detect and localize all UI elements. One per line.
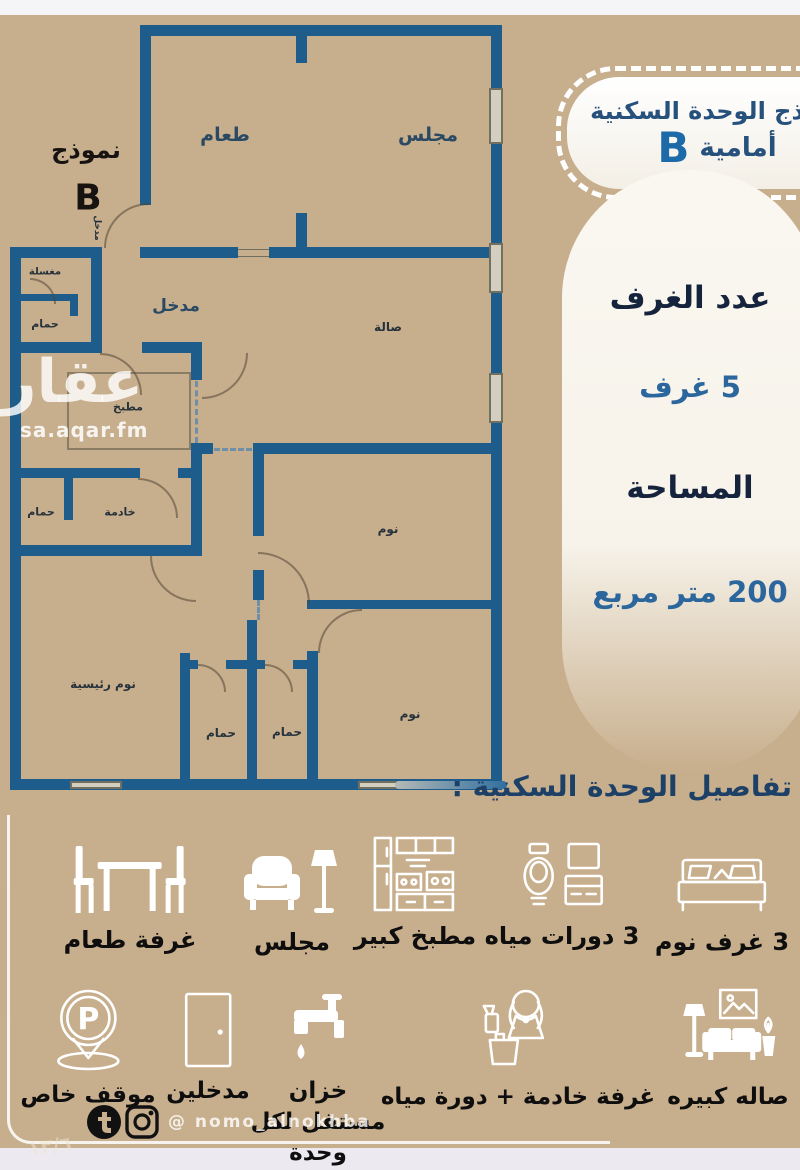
kitchen-icon [373, 832, 457, 912]
door-arc [30, 278, 56, 304]
wall-segment [191, 454, 202, 556]
water-tank-icon [286, 994, 350, 1066]
wall-segment [70, 294, 78, 316]
area-label: المساحة [626, 470, 753, 506]
wall-segment [180, 653, 190, 779]
wall-segment [247, 620, 257, 779]
room-label-maid: خادمة [104, 506, 135, 519]
wall-segment [91, 247, 102, 353]
wall-segment [140, 247, 238, 258]
tumblr-icon[interactable] [86, 1104, 122, 1140]
open-passage [195, 381, 198, 443]
feature-label: مجلس [254, 928, 330, 956]
info-panel: عدد الغرف 5 غرف المساحة 200 متر مربع [562, 170, 800, 772]
feature-bathrooms: 3 دورات مياه [485, 832, 640, 950]
aqar-logo: عقار [2, 352, 143, 412]
room-label-bath-a: حمام [206, 726, 236, 740]
room-label-master: نوم رئيسية [70, 677, 136, 691]
feature-label: غرفة طعام [64, 926, 197, 954]
wall-segment [178, 468, 191, 478]
room-label-maid-bath: حمام [27, 506, 55, 519]
badge-subtitle-text: أمامية [699, 133, 776, 163]
open-passage [214, 448, 252, 451]
toilet-icon [519, 832, 605, 912]
window [489, 243, 503, 293]
bed-icon [674, 838, 770, 918]
wall-segment [10, 545, 202, 556]
room-label-bath-top: حمام [31, 318, 59, 331]
wall-segment [307, 651, 318, 779]
wall-segment [10, 468, 140, 478]
rooms-count-label: عدد الغرف [610, 280, 771, 316]
living-room-icon [678, 988, 778, 1074]
wall-segment [269, 247, 491, 258]
room-label-hall: صالة [374, 320, 402, 334]
room-label-dining: طعام [200, 124, 250, 146]
svg-text:P: P [77, 1002, 99, 1037]
window [489, 88, 503, 144]
feature-dining-room: غرفة طعام [64, 836, 197, 954]
social-handle[interactable]: @ nomo_alnokhba [168, 1112, 371, 1132]
corner-model-title: نموذج [51, 136, 121, 164]
area-value: 200 متر مربع [592, 575, 787, 609]
door-arc [104, 203, 149, 248]
badge-subtitle: أمامية B [657, 127, 776, 169]
wall-segment [293, 660, 307, 669]
door-arc [202, 353, 248, 399]
room-label-bath-b: حمام [272, 725, 302, 739]
maid-icon [478, 986, 558, 1074]
badge-title: نموذج الوحدة السكنية [590, 97, 800, 125]
wall-segment [140, 25, 502, 36]
door-arc [138, 478, 178, 518]
wall-segment [257, 660, 265, 669]
wall-segment [190, 660, 198, 669]
room-label-entrance: مدخل [152, 296, 200, 316]
room-label-bedroom-mid: نوم [378, 522, 399, 536]
wall-segment [296, 25, 307, 63]
wall-segment [140, 25, 151, 205]
top-strip [0, 0, 800, 15]
wall-segment [10, 253, 21, 790]
corner-model-letter: B [74, 178, 101, 219]
feature-label: مدخلين [166, 1078, 250, 1104]
feature-maid-room: غرفة خادمة + دورة مياه [381, 986, 655, 1110]
feature-parking: P موقف خاص [20, 988, 155, 1108]
feature-entrances: مدخلين [166, 992, 250, 1104]
door-arc [265, 664, 293, 692]
room-label-entrance-door: مدخل [92, 215, 102, 240]
feature-label: صاله كبيره [667, 1084, 789, 1110]
room-label-bedroom-bottom: نوم [400, 707, 421, 721]
feature-label: 3 دورات مياه [485, 922, 640, 950]
feature-water-tank: خزان مستقل لكل وحدة [243, 994, 393, 1169]
feature-label: 3 غرف نوم [655, 928, 789, 956]
wall-segment [191, 443, 213, 454]
door-arc [318, 609, 362, 653]
door-arc [150, 556, 196, 602]
room-label-laundry: مغسلة [29, 267, 61, 278]
badge-letter: B [657, 127, 689, 169]
feature-label: مطبخ كبير [354, 922, 476, 950]
instagram-icon[interactable] [124, 1104, 160, 1140]
window [489, 373, 503, 423]
wall-segment [253, 454, 264, 536]
rooms-count-value: 5 غرف [639, 370, 741, 404]
details-heading: تفاصيل الوحدة السكنية : [452, 770, 792, 803]
wall-segment [253, 443, 491, 454]
doorway-lintel [238, 249, 269, 257]
feature-kitchen: مطبخ كبير [354, 832, 476, 950]
wall-segment [191, 342, 202, 380]
feature-label: غرفة خادمة + دورة مياه [381, 1084, 655, 1110]
door-icon [183, 992, 233, 1068]
window [70, 781, 122, 789]
feature-bedrooms: 3 غرف نوم [655, 838, 789, 956]
parking-icon: P [48, 988, 128, 1072]
wall-segment [10, 247, 91, 258]
door-arc [198, 664, 226, 692]
feature-large-hall: صاله كبيره [667, 988, 789, 1110]
dining-table-icon [64, 836, 196, 916]
armchair-lamp-icon [240, 838, 344, 918]
wall-segment [307, 600, 491, 609]
wall-segment [64, 478, 73, 520]
bottom-strip [0, 1148, 800, 1170]
room-label-majlis: مجلس [398, 124, 458, 146]
door-arc [258, 552, 310, 604]
feature-majlis: مجلس [240, 838, 344, 956]
wall-segment [226, 660, 247, 669]
aqar-site-url: sa.aqar.fm [20, 418, 148, 442]
